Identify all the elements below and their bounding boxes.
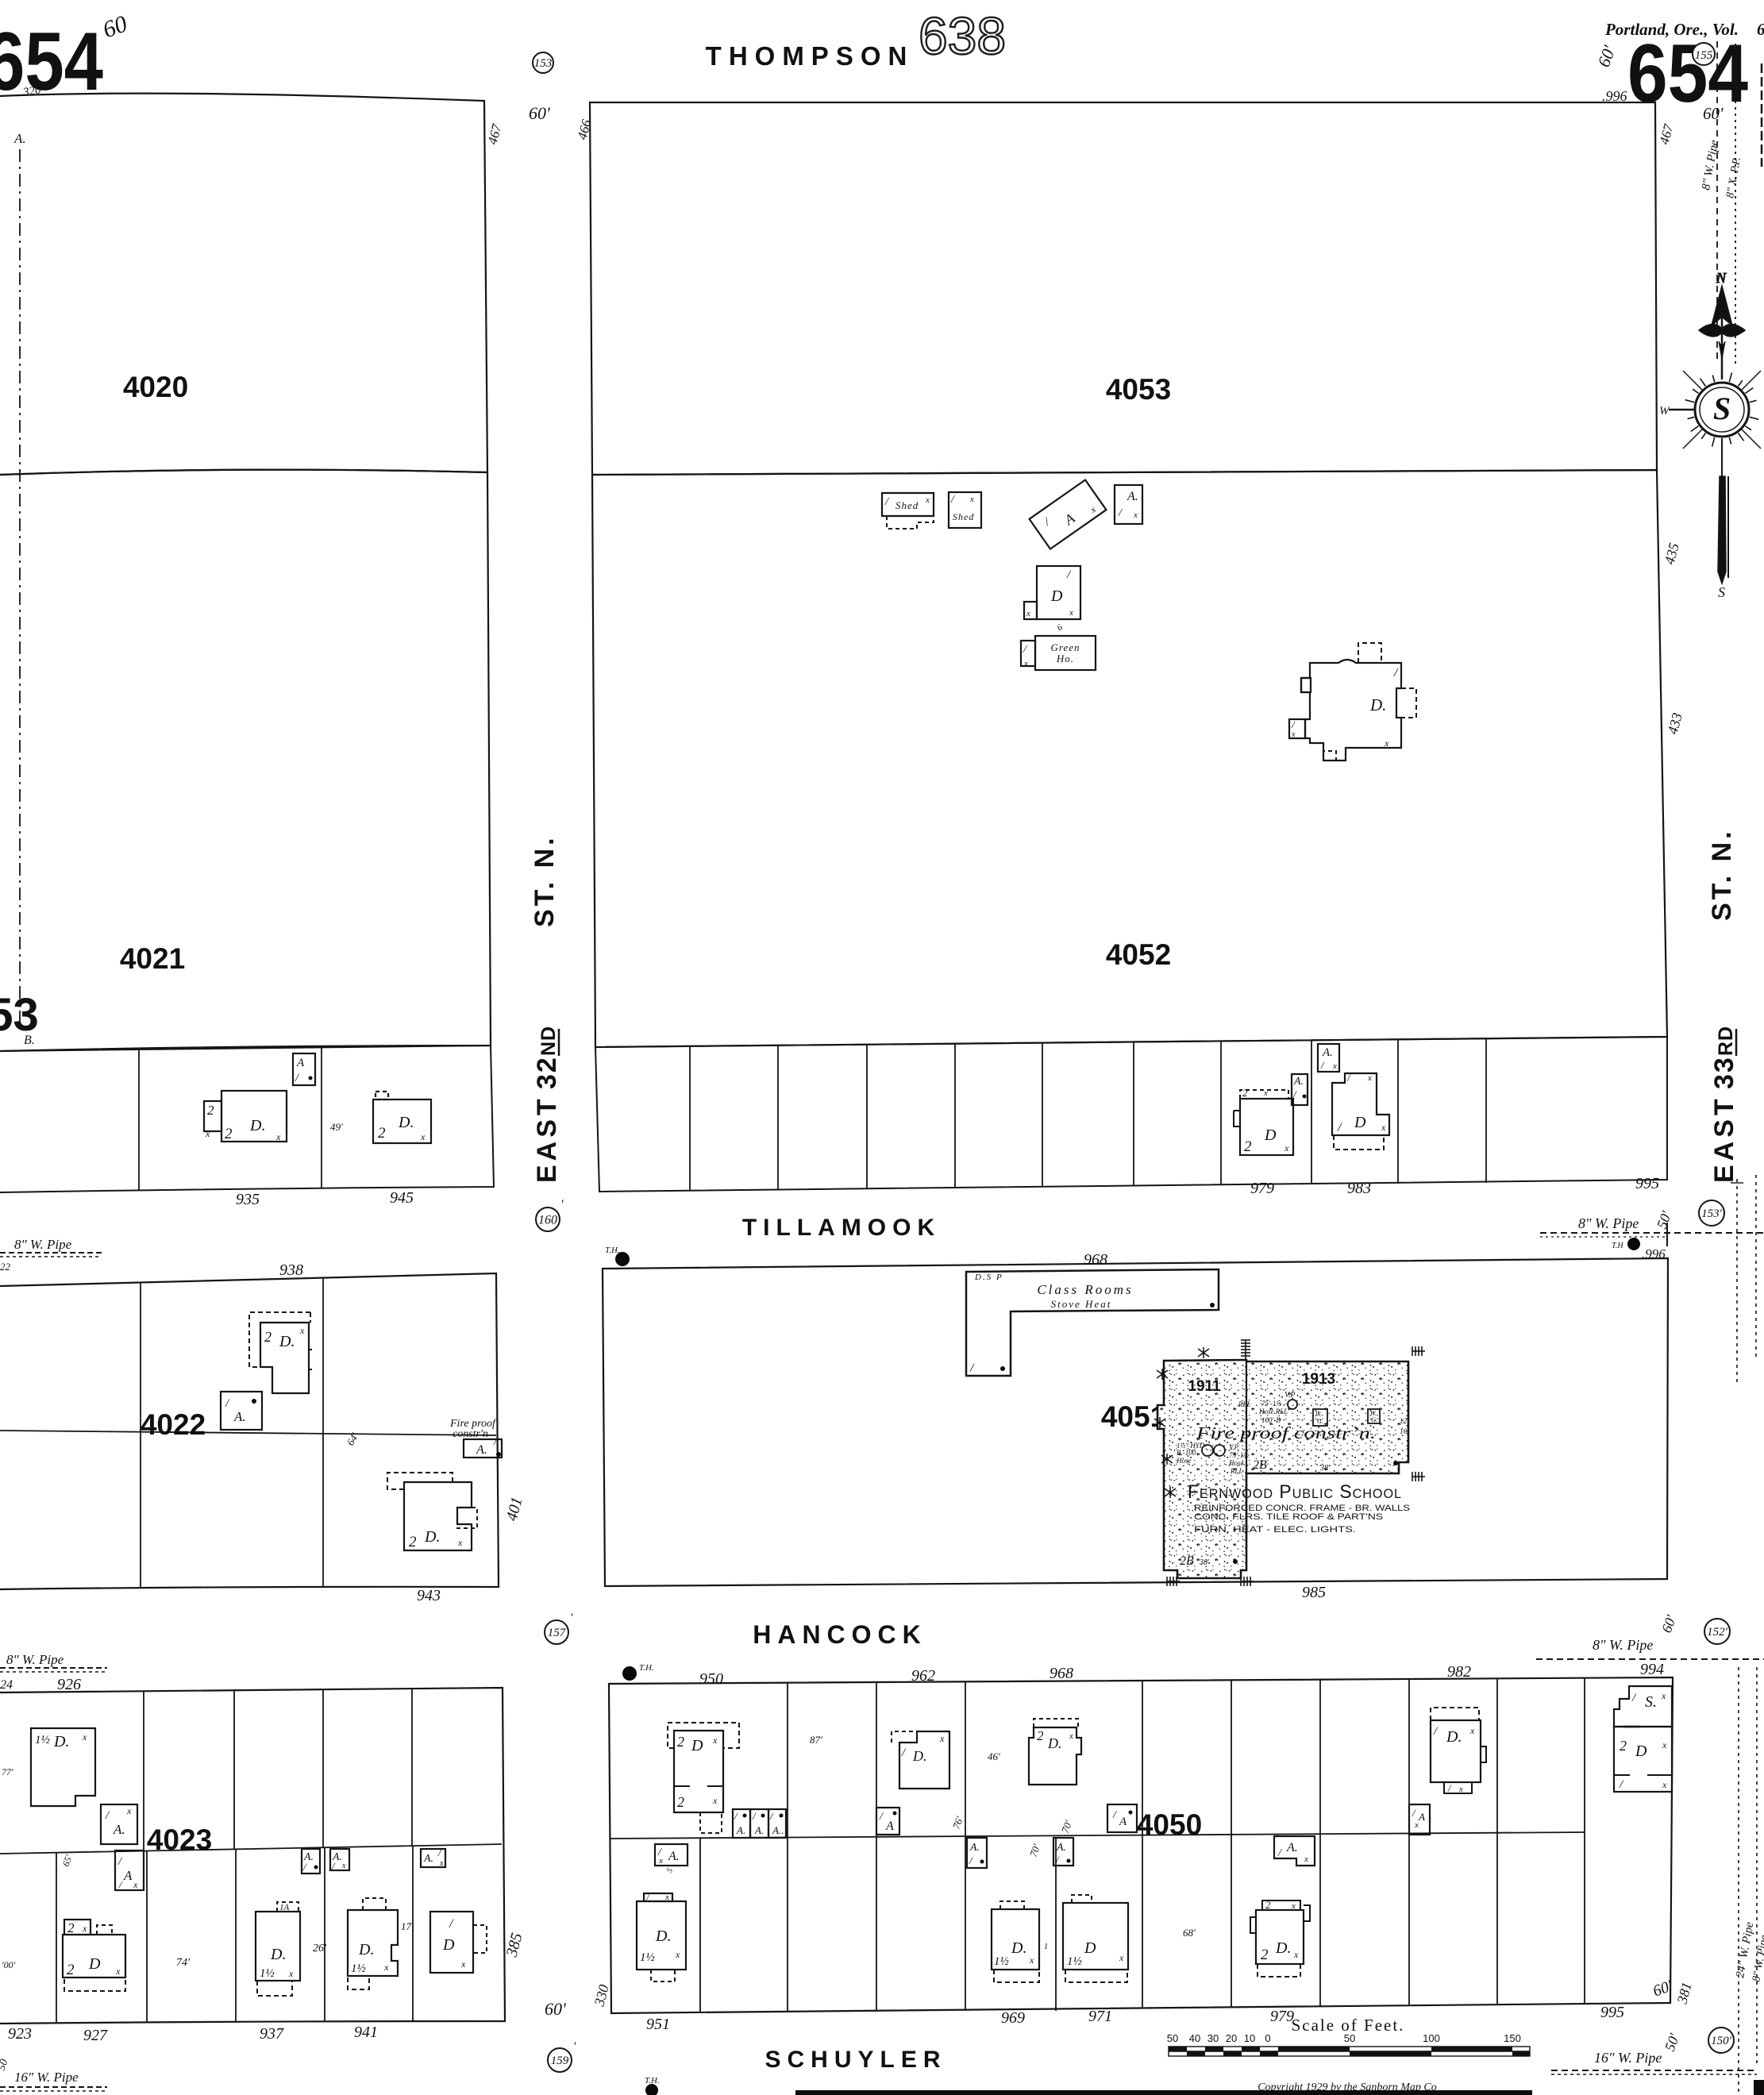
svg-text:969: 969 (1001, 2009, 1025, 2027)
svg-text:D.: D. (270, 1946, 286, 1963)
svg-text:75'-1½: 75'-1½ (1229, 1451, 1249, 1459)
svg-text:D.: D. (424, 1528, 440, 1546)
svg-text:985: 985 (1302, 1584, 1326, 1601)
svg-text:D.: D. (1446, 1728, 1462, 1746)
svg-text:2: 2 (378, 1125, 386, 1142)
svg-text:16" W. Pipe: 16" W. Pipe (1594, 2050, 1662, 2066)
svg-text:TILLAMOOK: TILLAMOOK (742, 1215, 941, 1241)
svg-text:2: 2 (67, 1920, 75, 1935)
svg-text:2: 2 (67, 1962, 75, 1978)
svg-text:A..: A.. (772, 1824, 784, 1836)
svg-text:Fernwood Public School: Fernwood Public School (1188, 1481, 1402, 1503)
svg-text:100'-B: 100'-B (1261, 1416, 1281, 1424)
svg-text:x: x (1291, 1901, 1296, 1911)
svg-text:D: D (1635, 1743, 1647, 1760)
svg-text:x: x (457, 1537, 463, 1548)
svg-text:60': 60' (529, 103, 550, 123)
svg-text:4053: 4053 (1106, 373, 1171, 406)
svg-text:x: x (460, 1958, 466, 1970)
svg-text:2: 2 (1261, 1947, 1269, 1963)
svg-text:8" W. Pipe: 8" W. Pipe (1593, 1637, 1653, 1653)
svg-text:A.: A. (13, 131, 26, 146)
svg-text:ST. N.: ST. N. (530, 834, 560, 927)
svg-text:x: x (383, 1962, 389, 1973)
svg-text:x: x (1661, 1690, 1666, 1701)
svg-text:D.: D. (398, 1114, 414, 1131)
svg-text:D.: D. (249, 1117, 265, 1134)
svg-text:150': 150' (1711, 2035, 1732, 2047)
svg-text:x: x (126, 1805, 132, 1816)
svg-text:A.: A. (1056, 1842, 1066, 1854)
svg-text:927: 927 (83, 2027, 108, 2044)
svg-text:968: 968 (1050, 1665, 1073, 1682)
svg-text:22: 22 (0, 1261, 11, 1273)
svg-text:153: 153 (534, 57, 553, 70)
svg-text:12: 12 (1400, 1417, 1408, 1425)
svg-text:A: A (123, 1868, 133, 1883)
svg-text:x: x (299, 1325, 305, 1336)
svg-text:40: 40 (1189, 2032, 1200, 2044)
svg-text:16" W. Pipe: 16" W. Pipe (14, 2070, 79, 2085)
svg-text:2: 2 (207, 1103, 214, 1118)
svg-text:D: D (1084, 1939, 1096, 1957)
svg-text:152': 152' (1707, 1626, 1728, 1639)
svg-text:979: 979 (1270, 2008, 1294, 2025)
svg-text:100: 100 (1423, 2032, 1440, 2044)
svg-text:D: D (1264, 1126, 1277, 1144)
svg-text:'00': '00' (2, 1959, 16, 1970)
svg-text:46': 46' (988, 1750, 1000, 1762)
svg-text:x: x (1662, 1779, 1667, 1790)
svg-text:S.: S. (1645, 1693, 1657, 1711)
svg-text:x: x (939, 1733, 945, 1744)
svg-text:D: D (88, 1955, 101, 1973)
svg-text:10: 10 (1244, 2032, 1255, 2044)
svg-text:x: x (1069, 1731, 1073, 1741)
svg-text:x: x (1023, 659, 1028, 668)
svg-text:2: 2 (1265, 1899, 1271, 1911)
svg-text:Shed: Shed (953, 511, 974, 522)
svg-text:x: x (1119, 1952, 1124, 1963)
svg-text:D.: D. (1275, 1939, 1291, 1957)
svg-text:1½: 1½ (1067, 1955, 1082, 1968)
svg-text:2: 2 (677, 1794, 684, 1810)
svg-text:x: x (288, 1968, 294, 1979)
svg-text:D.: D. (655, 1927, 671, 1945)
svg-text:A.: A. (969, 1842, 980, 1854)
svg-text:RLL: RLL (1230, 1467, 1243, 1475)
svg-text:638: 638 (919, 6, 1006, 65)
svg-text:EAST: EAST (1709, 1095, 1739, 1183)
svg-text:950: 950 (699, 1670, 723, 1688)
svg-text:G.: G. (1317, 1418, 1323, 1425)
svg-text:x: x (275, 1131, 281, 1142)
svg-text:A.: A. (476, 1443, 487, 1457)
svg-text:A.: A. (754, 1824, 764, 1836)
svg-text:SCHUYLER: SCHUYLER (765, 2047, 946, 2073)
svg-text:x: x (664, 1893, 669, 1902)
svg-text:D.: D. (1369, 695, 1386, 714)
svg-text:B.: B. (24, 1034, 35, 1047)
svg-text:2: 2 (1037, 1728, 1044, 1743)
svg-text:x: x (82, 1923, 87, 1934)
svg-text:D.: D. (1011, 1939, 1026, 1957)
svg-text:4052: 4052 (1106, 938, 1171, 971)
svg-text:D.: D. (279, 1333, 295, 1350)
svg-text:1: 1 (1044, 1943, 1048, 1951)
svg-text:Hose: Hose (1176, 1457, 1192, 1465)
svg-text:33: 33 (1709, 1056, 1739, 1089)
svg-text:x: x (712, 1795, 718, 1806)
svg-text:x: x (439, 1859, 444, 1868)
svg-text:RLL: RLL (1238, 1400, 1251, 1408)
svg-text:FURN. HEAT - ELEC. LIGHTS.: FURN. HEAT - ELEC. LIGHTS. (1194, 1525, 1356, 1535)
svg-text:2: 2 (1244, 1138, 1252, 1155)
svg-text:A.: A. (113, 1822, 125, 1837)
svg-text:D: D (442, 1936, 455, 1954)
svg-text:A.: A. (1127, 490, 1138, 503)
svg-text:979: 979 (1250, 1180, 1274, 1197)
svg-text:155: 155 (1695, 49, 1713, 62)
svg-text:S: S (1718, 584, 1725, 600)
svg-text:50: 50 (1167, 2032, 1178, 2044)
svg-text:x: x (925, 495, 930, 505)
svg-text:923: 923 (8, 2025, 32, 2043)
svg-text:6: 6 (1757, 20, 1764, 39)
svg-text:x: x (1284, 1142, 1289, 1153)
svg-text:77': 77' (2, 1766, 13, 1777)
svg-text:Green: Green (1050, 641, 1080, 653)
svg-text:4023: 4023 (147, 1823, 212, 1856)
svg-text:654: 654 (1627, 28, 1748, 120)
svg-text:A.: A. (1293, 1076, 1304, 1088)
svg-text:T.H: T.H (1612, 1242, 1623, 1250)
svg-text:20: 20 (1226, 2032, 1237, 2044)
svg-text:49': 49' (330, 1121, 343, 1133)
svg-text:x: x (969, 495, 974, 504)
svg-text:constr'n: constr'n (453, 1428, 488, 1440)
svg-text:A.: A. (736, 1824, 745, 1836)
svg-text:2: 2 (409, 1534, 417, 1550)
svg-text:Ho.: Ho. (1056, 653, 1074, 664)
svg-text:75'-1½: 75'-1½ (1261, 1400, 1281, 1408)
svg-text:4020: 4020 (123, 371, 188, 403)
svg-text:T.H.: T.H. (639, 1663, 654, 1673)
svg-text:x: x (658, 1856, 663, 1866)
svg-text:ST. N.: ST. N. (1707, 828, 1737, 921)
svg-text:74': 74' (176, 1957, 191, 1969)
svg-text:8" W. Pipe: 8" W. Pipe (14, 1237, 72, 1252)
svg-text:8" W. Pipe: 8" W. Pipe (6, 1652, 64, 1667)
svg-text:1½: 1½ (260, 1967, 275, 1980)
svg-text:G.: G. (1371, 1416, 1377, 1423)
svg-text:38': 38' (1199, 1558, 1210, 1567)
svg-text:4021: 4021 (120, 942, 185, 975)
svg-text:D.: D. (1047, 1735, 1062, 1751)
svg-text:x: x (1662, 1739, 1667, 1750)
svg-text:x: x (1332, 1061, 1337, 1071)
svg-text:4050: 4050 (1137, 1808, 1202, 1841)
svg-text:Fire proof constr’n.: Fire proof constr’n. (1196, 1423, 1376, 1442)
svg-text:Hose: Hose (1228, 1459, 1244, 1467)
svg-text:2: 2 (1242, 1087, 1248, 1099)
svg-text:60': 60' (545, 1999, 566, 2019)
svg-text:24: 24 (0, 1678, 13, 1692)
svg-text:945: 945 (390, 1189, 414, 1207)
svg-text:157: 157 (548, 1627, 567, 1639)
svg-text:1913: 1913 (1302, 1371, 1335, 1388)
svg-text:CONC. FLRS. TILE ROOF & PART': CONC. FLRS. TILE ROOF & PART'NS (1194, 1512, 1383, 1522)
svg-text:A: A (1418, 1811, 1425, 1823)
svg-text:THOMPSON: THOMPSON (706, 41, 915, 71)
svg-text:983: 983 (1347, 1180, 1371, 1197)
svg-text:943: 943 (417, 1587, 441, 1604)
svg-text:x: x (1133, 510, 1138, 520)
svg-text:17': 17' (401, 1920, 414, 1932)
svg-text:2B: 2B (1180, 1554, 1194, 1568)
svg-text:971: 971 (1088, 2008, 1112, 2025)
svg-text:D.: D. (358, 1941, 374, 1958)
svg-text:A.: A. (233, 1409, 246, 1424)
svg-text:938: 938 (279, 1261, 303, 1279)
svg-text:Shed: Shed (895, 499, 919, 511)
svg-text:W: W (1659, 405, 1670, 418)
svg-text:Hose RLL: Hose RLL (1258, 1408, 1288, 1415)
svg-text:x: x (1304, 1854, 1308, 1864)
svg-text:x: x (1069, 608, 1073, 618)
svg-text:1½: 1½ (640, 1951, 655, 1964)
svg-text:A: A (885, 1820, 894, 1833)
svg-text:D.S P: D.S P (974, 1273, 1003, 1282)
svg-text:x: x (675, 1949, 680, 1960)
svg-text:968: 968 (1084, 1251, 1107, 1269)
svg-text:2: 2 (225, 1126, 233, 1142)
svg-text:A: A (296, 1057, 305, 1069)
svg-text:150: 150 (1504, 2032, 1521, 2044)
svg-text:x: x (1263, 1088, 1268, 1098)
svg-text:x: x (1381, 1122, 1386, 1133)
svg-text:x: x (205, 1128, 210, 1139)
svg-text:60': 60' (1703, 104, 1724, 123)
svg-text:x: x (1026, 609, 1030, 618)
svg-text:951: 951 (646, 2016, 670, 2033)
svg-text:x: x (341, 1862, 346, 1870)
svg-text:x: x (1458, 1785, 1463, 1794)
svg-text:D.: D. (53, 1733, 69, 1750)
svg-text:D.: D. (912, 1748, 927, 1764)
svg-text:982: 982 (1447, 1663, 1471, 1681)
svg-text:A.: A. (1322, 1046, 1333, 1059)
svg-text:4022: 4022 (141, 1408, 206, 1441)
svg-text:0: 0 (1265, 2032, 1270, 2044)
svg-text:A.: A. (1286, 1841, 1298, 1854)
svg-text:32: 32 (532, 1056, 562, 1089)
svg-text:937: 937 (260, 2025, 284, 2043)
svg-text:x: x (1293, 1949, 1299, 1960)
svg-text:A: A (1119, 1816, 1127, 1828)
svg-text:T.H.: T.H. (605, 1246, 620, 1255)
svg-text:159: 159 (551, 2055, 569, 2067)
svg-text:Stove Heat: Stove Heat (1051, 1298, 1112, 1310)
svg-text:962: 962 (911, 1667, 935, 1685)
svg-text:1½: 1½ (994, 1955, 1009, 1968)
svg-text:2: 2 (264, 1329, 272, 1345)
svg-text:x: x (115, 1966, 121, 1977)
svg-text:8" W. Pipe: 8" W. Pipe (1578, 1215, 1639, 1231)
svg-text:D: D (1354, 1114, 1366, 1131)
svg-text:B.-100: B.-100 (1177, 1449, 1196, 1457)
svg-text:A.: A. (423, 1853, 433, 1865)
svg-text:A.: A. (668, 1850, 680, 1863)
svg-text:26': 26' (313, 1943, 327, 1954)
svg-text:50: 50 (1344, 2032, 1355, 2044)
svg-text:38': 38' (1319, 1464, 1331, 1473)
svg-text:2: 2 (677, 1734, 684, 1750)
svg-text:D: D (1050, 587, 1063, 605)
svg-text:RD: RD (1715, 1026, 1737, 1056)
svg-text:1½: 1½ (35, 1734, 50, 1746)
svg-text:2: 2 (1620, 1738, 1627, 1754)
svg-text:935: 935 (236, 1191, 260, 1208)
svg-text:995: 995 (1600, 2004, 1624, 2021)
svg-text:160: 160 (538, 1213, 557, 1227)
svg-text:ND: ND (537, 1026, 560, 1056)
svg-text:941: 941 (354, 2024, 378, 2041)
svg-text:995: 995 (1635, 1175, 1659, 1192)
svg-text:994: 994 (1640, 1661, 1664, 1678)
svg-text:16: 16 (1400, 1427, 1408, 1435)
svg-text:x: x (1469, 1725, 1475, 1736)
svg-text:x: x (1384, 737, 1389, 749)
svg-text:HANCOCK: HANCOCK (753, 1620, 927, 1649)
svg-text:V.P.: V.P. (1229, 1443, 1239, 1451)
svg-text:x: x (420, 1131, 426, 1142)
svg-text:V.P: V.P (1284, 1391, 1295, 1400)
svg-text:1A: 1A (279, 1903, 290, 1912)
svg-text:926: 926 (57, 1676, 81, 1693)
svg-text:S: S (1713, 391, 1731, 426)
svg-text:EAST: EAST (532, 1095, 562, 1183)
svg-text:x: x (133, 1879, 138, 1890)
svg-text:1911: 1911 (1188, 1378, 1221, 1395)
svg-text:87': 87' (810, 1734, 822, 1746)
svg-text:x: x (82, 1731, 87, 1743)
svg-text:': ' (560, 1198, 564, 1211)
svg-text:2B: 2B (1253, 1458, 1267, 1472)
svg-text:x: x (1291, 730, 1296, 739)
svg-text:68': 68' (1183, 1927, 1196, 1939)
svg-text:x: x (712, 1735, 718, 1746)
svg-text:x: x (1029, 1954, 1034, 1966)
svg-text:D: D (691, 1737, 703, 1754)
svg-text:1½: 1½ (351, 1962, 366, 1975)
svg-text:W.: W. (1315, 1411, 1322, 1418)
svg-text:153': 153' (1701, 1207, 1723, 1220)
svg-text:Class Rooms: Class Rooms (1037, 1282, 1133, 1297)
svg-text:N: N (1716, 270, 1727, 286)
svg-text:30: 30 (1207, 2032, 1219, 2044)
svg-text:x: x (1367, 1073, 1372, 1083)
